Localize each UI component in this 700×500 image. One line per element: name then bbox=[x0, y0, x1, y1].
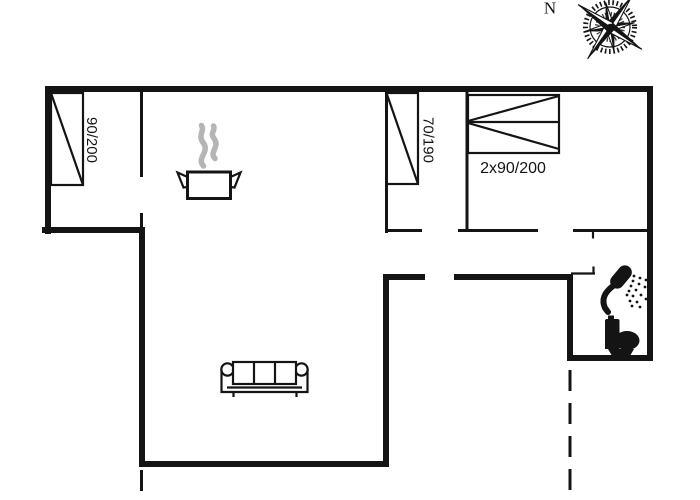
interior-walls bbox=[142, 92, 651, 233]
bed-label-single-left: 90/200 bbox=[83, 117, 100, 163]
shower-icon bbox=[603, 263, 651, 312]
bed-symbol-single-left bbox=[51, 93, 83, 185]
floor-plan: 90/200 70/190 2x90/200 bbox=[0, 0, 700, 500]
terrace-boundary-dashed bbox=[142, 370, 571, 500]
steam-icon bbox=[201, 126, 216, 167]
cooking-pot-icon bbox=[178, 172, 241, 199]
compass-north-label: N bbox=[544, 0, 556, 18]
bed-symbol-double-right bbox=[468, 95, 559, 153]
sofa-icon bbox=[221, 362, 307, 397]
toilet-icon bbox=[605, 316, 640, 359]
compass-rose-icon bbox=[574, 0, 646, 63]
floor-plan-svg: 90/200 70/190 2x90/200 bbox=[0, 0, 700, 500]
bed-label-single-middle: 70/190 bbox=[420, 117, 437, 163]
bed-label-double-right: 2x90/200 bbox=[480, 160, 546, 177]
bed-symbol-single-middle bbox=[387, 93, 419, 184]
door-jamb-marks bbox=[571, 232, 595, 274]
